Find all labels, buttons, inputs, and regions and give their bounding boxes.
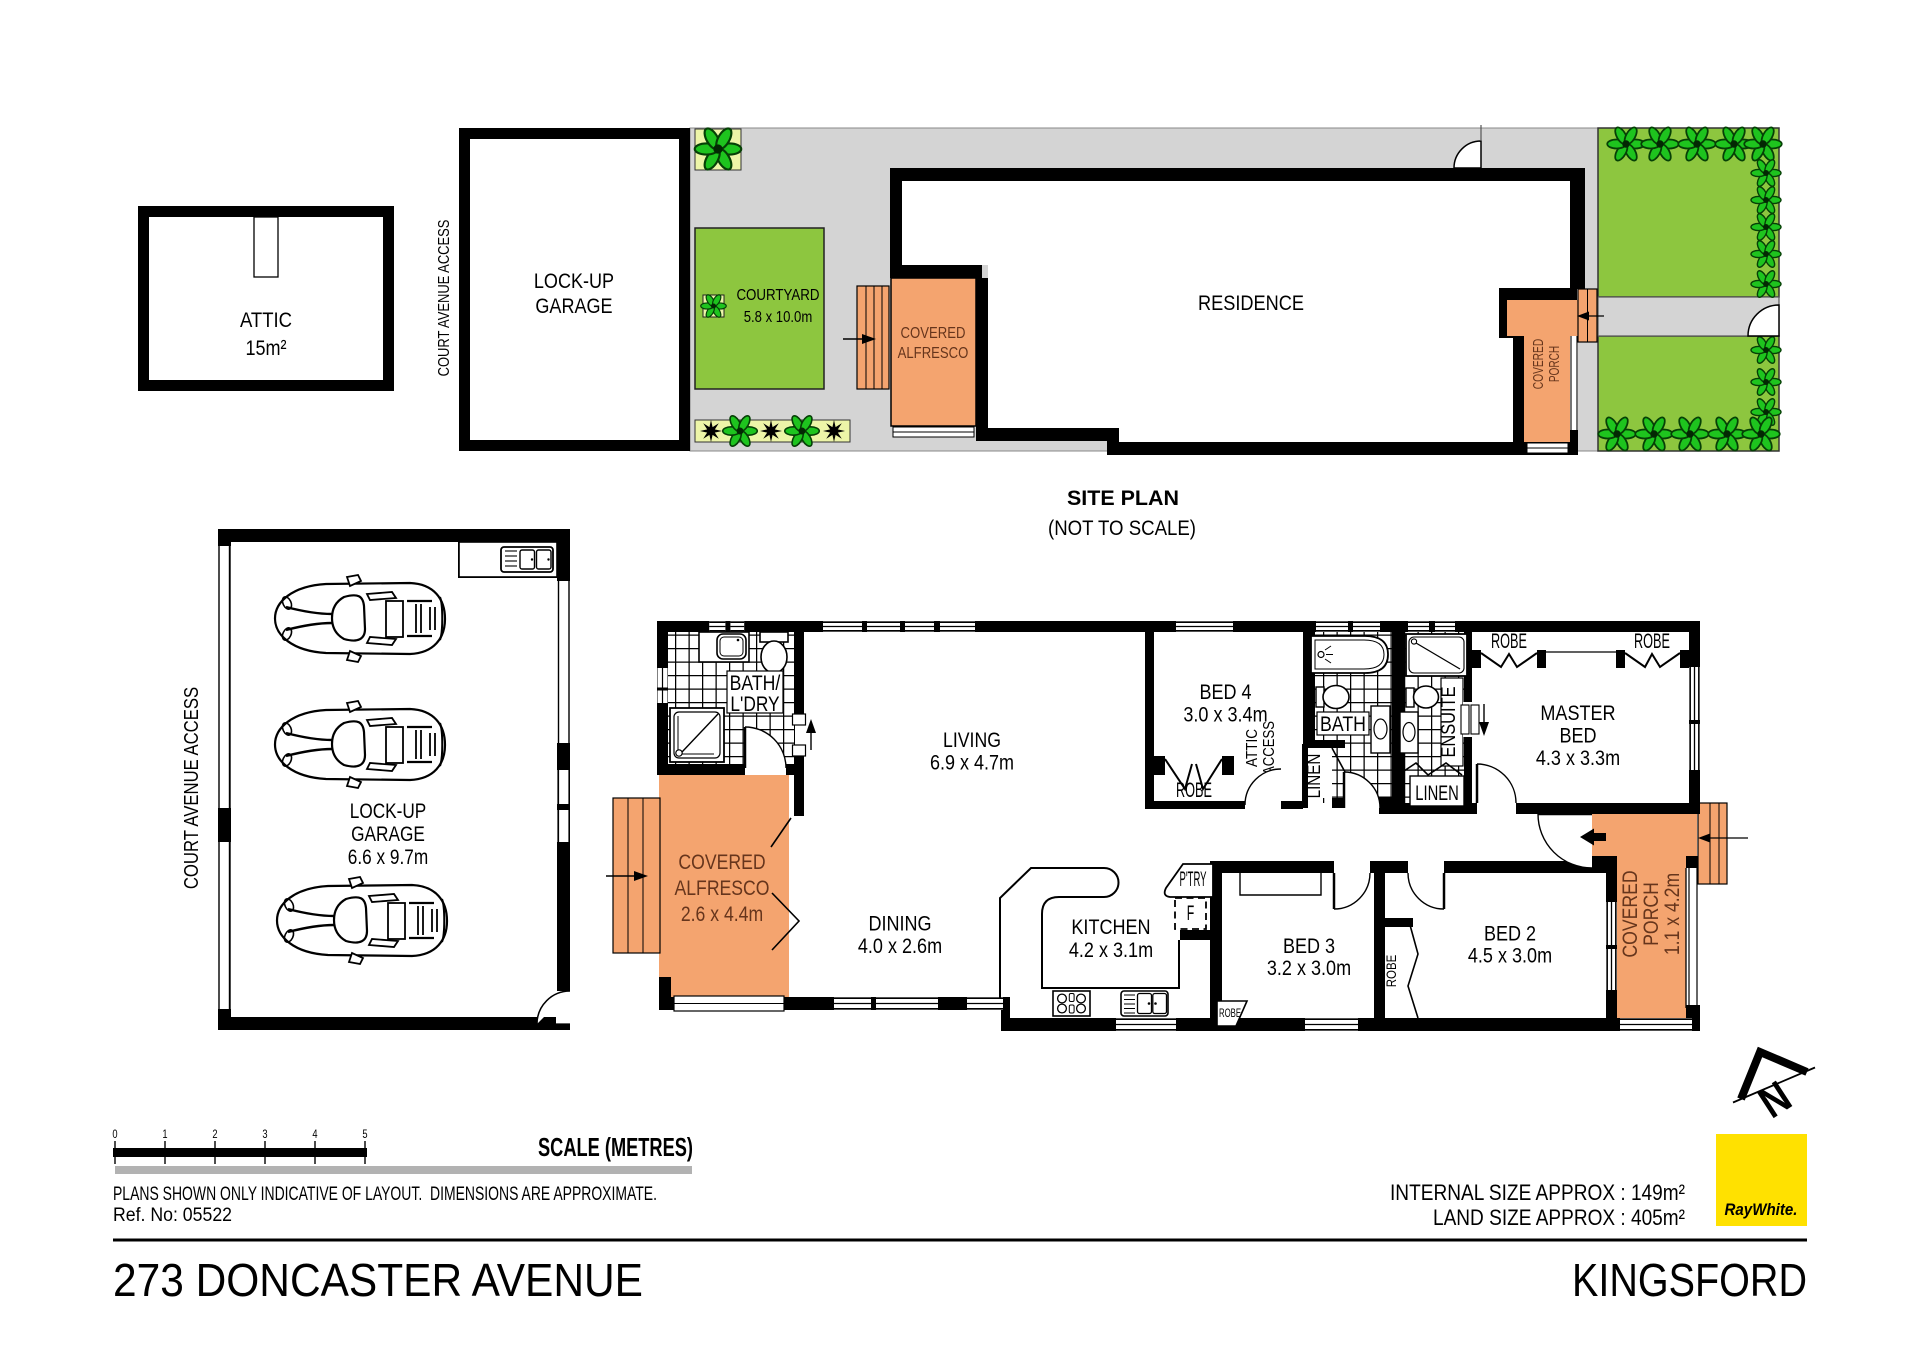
svg-text:ALFRESCO: ALFRESCO	[675, 876, 770, 900]
svg-text:BED: BED	[1559, 724, 1596, 748]
svg-text:PLANS SHOWN ONLY INDICATIVE OF: PLANS SHOWN ONLY INDICATIVE OF LAYOUT. D…	[113, 1183, 657, 1205]
svg-text:ROBE: ROBE	[1176, 778, 1212, 802]
svg-text:L'DRY: L'DRY	[730, 692, 779, 716]
svg-text:LOCK-UP: LOCK-UP	[350, 799, 427, 823]
svg-text:5: 5	[362, 1129, 367, 1141]
svg-text:4: 4	[312, 1129, 318, 1141]
svg-text:15m²: 15m²	[245, 336, 286, 360]
svg-text:RESIDENCE: RESIDENCE	[1198, 291, 1304, 315]
svg-text:LIVING: LIVING	[943, 728, 1001, 752]
svg-text:ATTIC: ATTIC	[1244, 729, 1261, 767]
svg-text:F: F	[1187, 901, 1195, 925]
svg-text:COVERED: COVERED	[1530, 339, 1547, 390]
svg-text:5.8 x 10.0m: 5.8 x 10.0m	[744, 309, 813, 326]
svg-text:2: 2	[212, 1129, 217, 1141]
svg-text:1: 1	[162, 1129, 167, 1141]
svg-text:3.0 x 3.4m: 3.0 x 3.4m	[1183, 703, 1267, 727]
svg-text:KITCHEN: KITCHEN	[1071, 915, 1150, 939]
svg-text:COURTYARD: COURTYARD	[736, 287, 819, 304]
svg-text:4.5 x 3.0m: 4.5 x 3.0m	[1468, 944, 1552, 968]
svg-text:GARAGE: GARAGE	[535, 294, 612, 318]
svg-text:6.9 x 4.7m: 6.9 x 4.7m	[930, 751, 1014, 775]
svg-text:COVERED: COVERED	[901, 325, 966, 342]
svg-text:BED 2: BED 2	[1484, 922, 1536, 946]
svg-text:273 DONCASTER AVENUE: 273 DONCASTER AVENUE	[113, 1254, 643, 1306]
svg-text:ACCESS: ACCESS	[1261, 721, 1278, 775]
svg-text:4.3 x 3.3m: 4.3 x 3.3m	[1536, 746, 1620, 770]
svg-text:P'TRY: P'TRY	[1180, 867, 1207, 891]
svg-text:DINING: DINING	[868, 912, 931, 936]
svg-text:ROBE: ROBE	[1383, 955, 1399, 988]
svg-text:ROBE: ROBE	[1219, 1008, 1241, 1020]
svg-text:COURT AVENUE ACCESS: COURT AVENUE ACCESS	[181, 687, 203, 889]
svg-text:BED 4: BED 4	[1199, 680, 1251, 704]
svg-text:SITE PLAN: SITE PLAN	[1067, 486, 1179, 510]
svg-text:3.2 x 3.0m: 3.2 x 3.0m	[1267, 956, 1351, 980]
svg-text:2.6 x 4.4m: 2.6 x 4.4m	[681, 902, 763, 926]
svg-text:KINGSFORD: KINGSFORD	[1572, 1254, 1807, 1306]
svg-text:3: 3	[262, 1129, 267, 1141]
svg-text:RayWhite.: RayWhite.	[1725, 1200, 1798, 1219]
svg-text:LOCK-UP: LOCK-UP	[534, 269, 614, 293]
svg-text:COVERED: COVERED	[678, 850, 765, 874]
svg-text:0: 0	[112, 1129, 117, 1141]
svg-text:ENSUITE: ENSUITE	[1438, 686, 1460, 757]
svg-text:PORCH: PORCH	[1546, 346, 1563, 382]
svg-text:6.6 x 9.7m: 6.6 x 9.7m	[348, 845, 428, 869]
svg-text:ALFRESCO: ALFRESCO	[898, 345, 969, 362]
svg-text:LAND SIZE APPROX : 405m²: LAND SIZE APPROX : 405m²	[1433, 1205, 1685, 1230]
svg-text:ROBE: ROBE	[1491, 629, 1527, 653]
svg-text:4.0 x 2.6m: 4.0 x 2.6m	[858, 934, 942, 958]
svg-text:LINEN: LINEN	[1415, 781, 1459, 805]
svg-text:4.2 x 3.1m: 4.2 x 3.1m	[1069, 938, 1153, 962]
svg-text:ATTIC: ATTIC	[240, 308, 292, 332]
svg-text:1.1 x 4.2m: 1.1 x 4.2m	[1660, 873, 1684, 955]
svg-text:COURT AVENUE ACCESS: COURT AVENUE ACCESS	[436, 220, 453, 377]
svg-text:ROBE: ROBE	[1634, 629, 1670, 653]
svg-text:Ref. No: 05522: Ref. No: 05522	[113, 1204, 232, 1226]
svg-text:MASTER: MASTER	[1540, 701, 1615, 725]
svg-text:(NOT TO SCALE): (NOT TO SCALE)	[1048, 516, 1196, 540]
svg-text:BATH: BATH	[1320, 712, 1366, 736]
svg-text:BED 3: BED 3	[1283, 934, 1335, 958]
svg-text:GARAGE: GARAGE	[351, 822, 425, 846]
svg-text:LINEN: LINEN	[1304, 754, 1324, 799]
svg-text:SCALE (METRES): SCALE (METRES)	[538, 1132, 693, 1162]
svg-text:INTERNAL SIZE APPROX : 149m²: INTERNAL SIZE APPROX : 149m²	[1390, 1180, 1685, 1205]
